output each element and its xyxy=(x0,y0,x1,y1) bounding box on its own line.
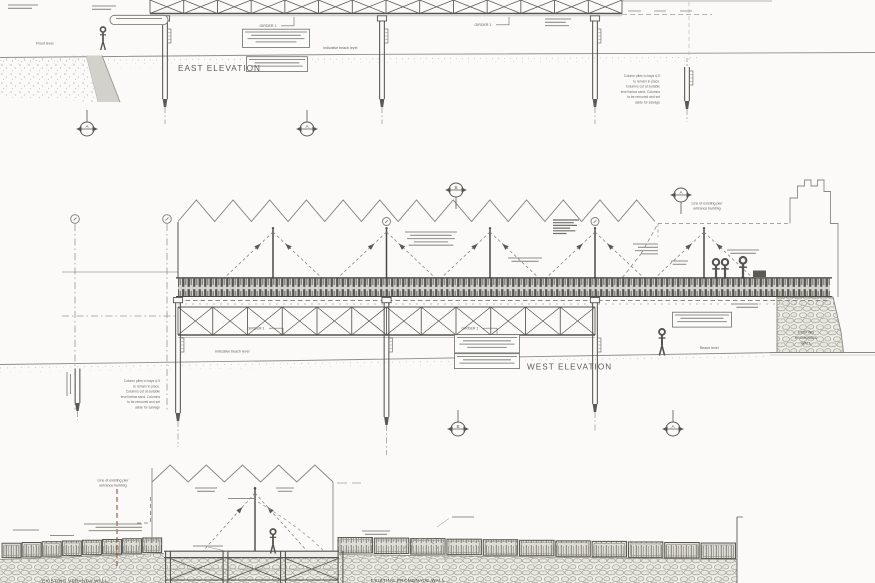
west-flagpoles xyxy=(221,227,756,283)
column-piles-note-east: Column piles to bays 6-9to remain in pla… xyxy=(621,74,661,105)
girder-label-east-1: GIRDER 1 xyxy=(260,24,277,28)
flood-level-label: Flood level xyxy=(36,42,54,46)
bottom-flagpole xyxy=(203,487,326,553)
promenade-wall-label-bottom: EXISTING PROMENADE WALL xyxy=(371,578,445,583)
girder-label-east-2: GIRDER 1 xyxy=(475,23,492,27)
drawing-labels: EAST ELEVATION WEST ELEVATION GIRDER 1 G… xyxy=(36,23,818,583)
svg-text:B: B xyxy=(454,185,457,190)
bottom-person-figure xyxy=(270,529,276,554)
pier-elevation-drawing: AABABA EAST ELEVATION WEST ELEVATION GIR… xyxy=(0,0,875,583)
girder-label-west-1: GIRDER 1 xyxy=(248,327,265,331)
west-beach-level xyxy=(0,353,875,373)
veranda-wall-label-bottom: EXISTING VERANDA WALL xyxy=(42,579,108,583)
west-truss-girder xyxy=(178,307,595,337)
east-section-markers: AA xyxy=(77,110,318,136)
west-elevation-title: WEST ELEVATION xyxy=(527,363,612,372)
east-truss-girder xyxy=(150,0,712,26)
east-elevation-title: EAST ELEVATION xyxy=(178,64,261,73)
beach-level-label-east: Indicative beach level xyxy=(323,46,358,50)
column-piles-note-west: Column piles to bays 6-9to remain in pla… xyxy=(121,379,161,410)
beach-level-label-right: Beach level xyxy=(700,346,719,350)
svg-text:B: B xyxy=(456,424,459,429)
entrance-building-label-west: Line of existing pierentrance building xyxy=(692,202,724,211)
west-deck-and-railing xyxy=(176,278,832,304)
girder-label-west-2: GIRDER 1 xyxy=(462,327,479,331)
pier-elevation-drawing-sheet: AABABA EAST ELEVATION WEST ELEVATION GIR… xyxy=(0,0,875,583)
drawing-scene: AABABA xyxy=(0,0,875,583)
beach-level-label-west: Indicative beach level xyxy=(215,350,250,354)
east-person-figure xyxy=(100,27,106,50)
entrance-building-label-bottom: Line of existing pierentrance building xyxy=(98,479,130,488)
bottom-canopy-roofline xyxy=(152,465,361,553)
west-person-on-beach xyxy=(659,329,666,356)
